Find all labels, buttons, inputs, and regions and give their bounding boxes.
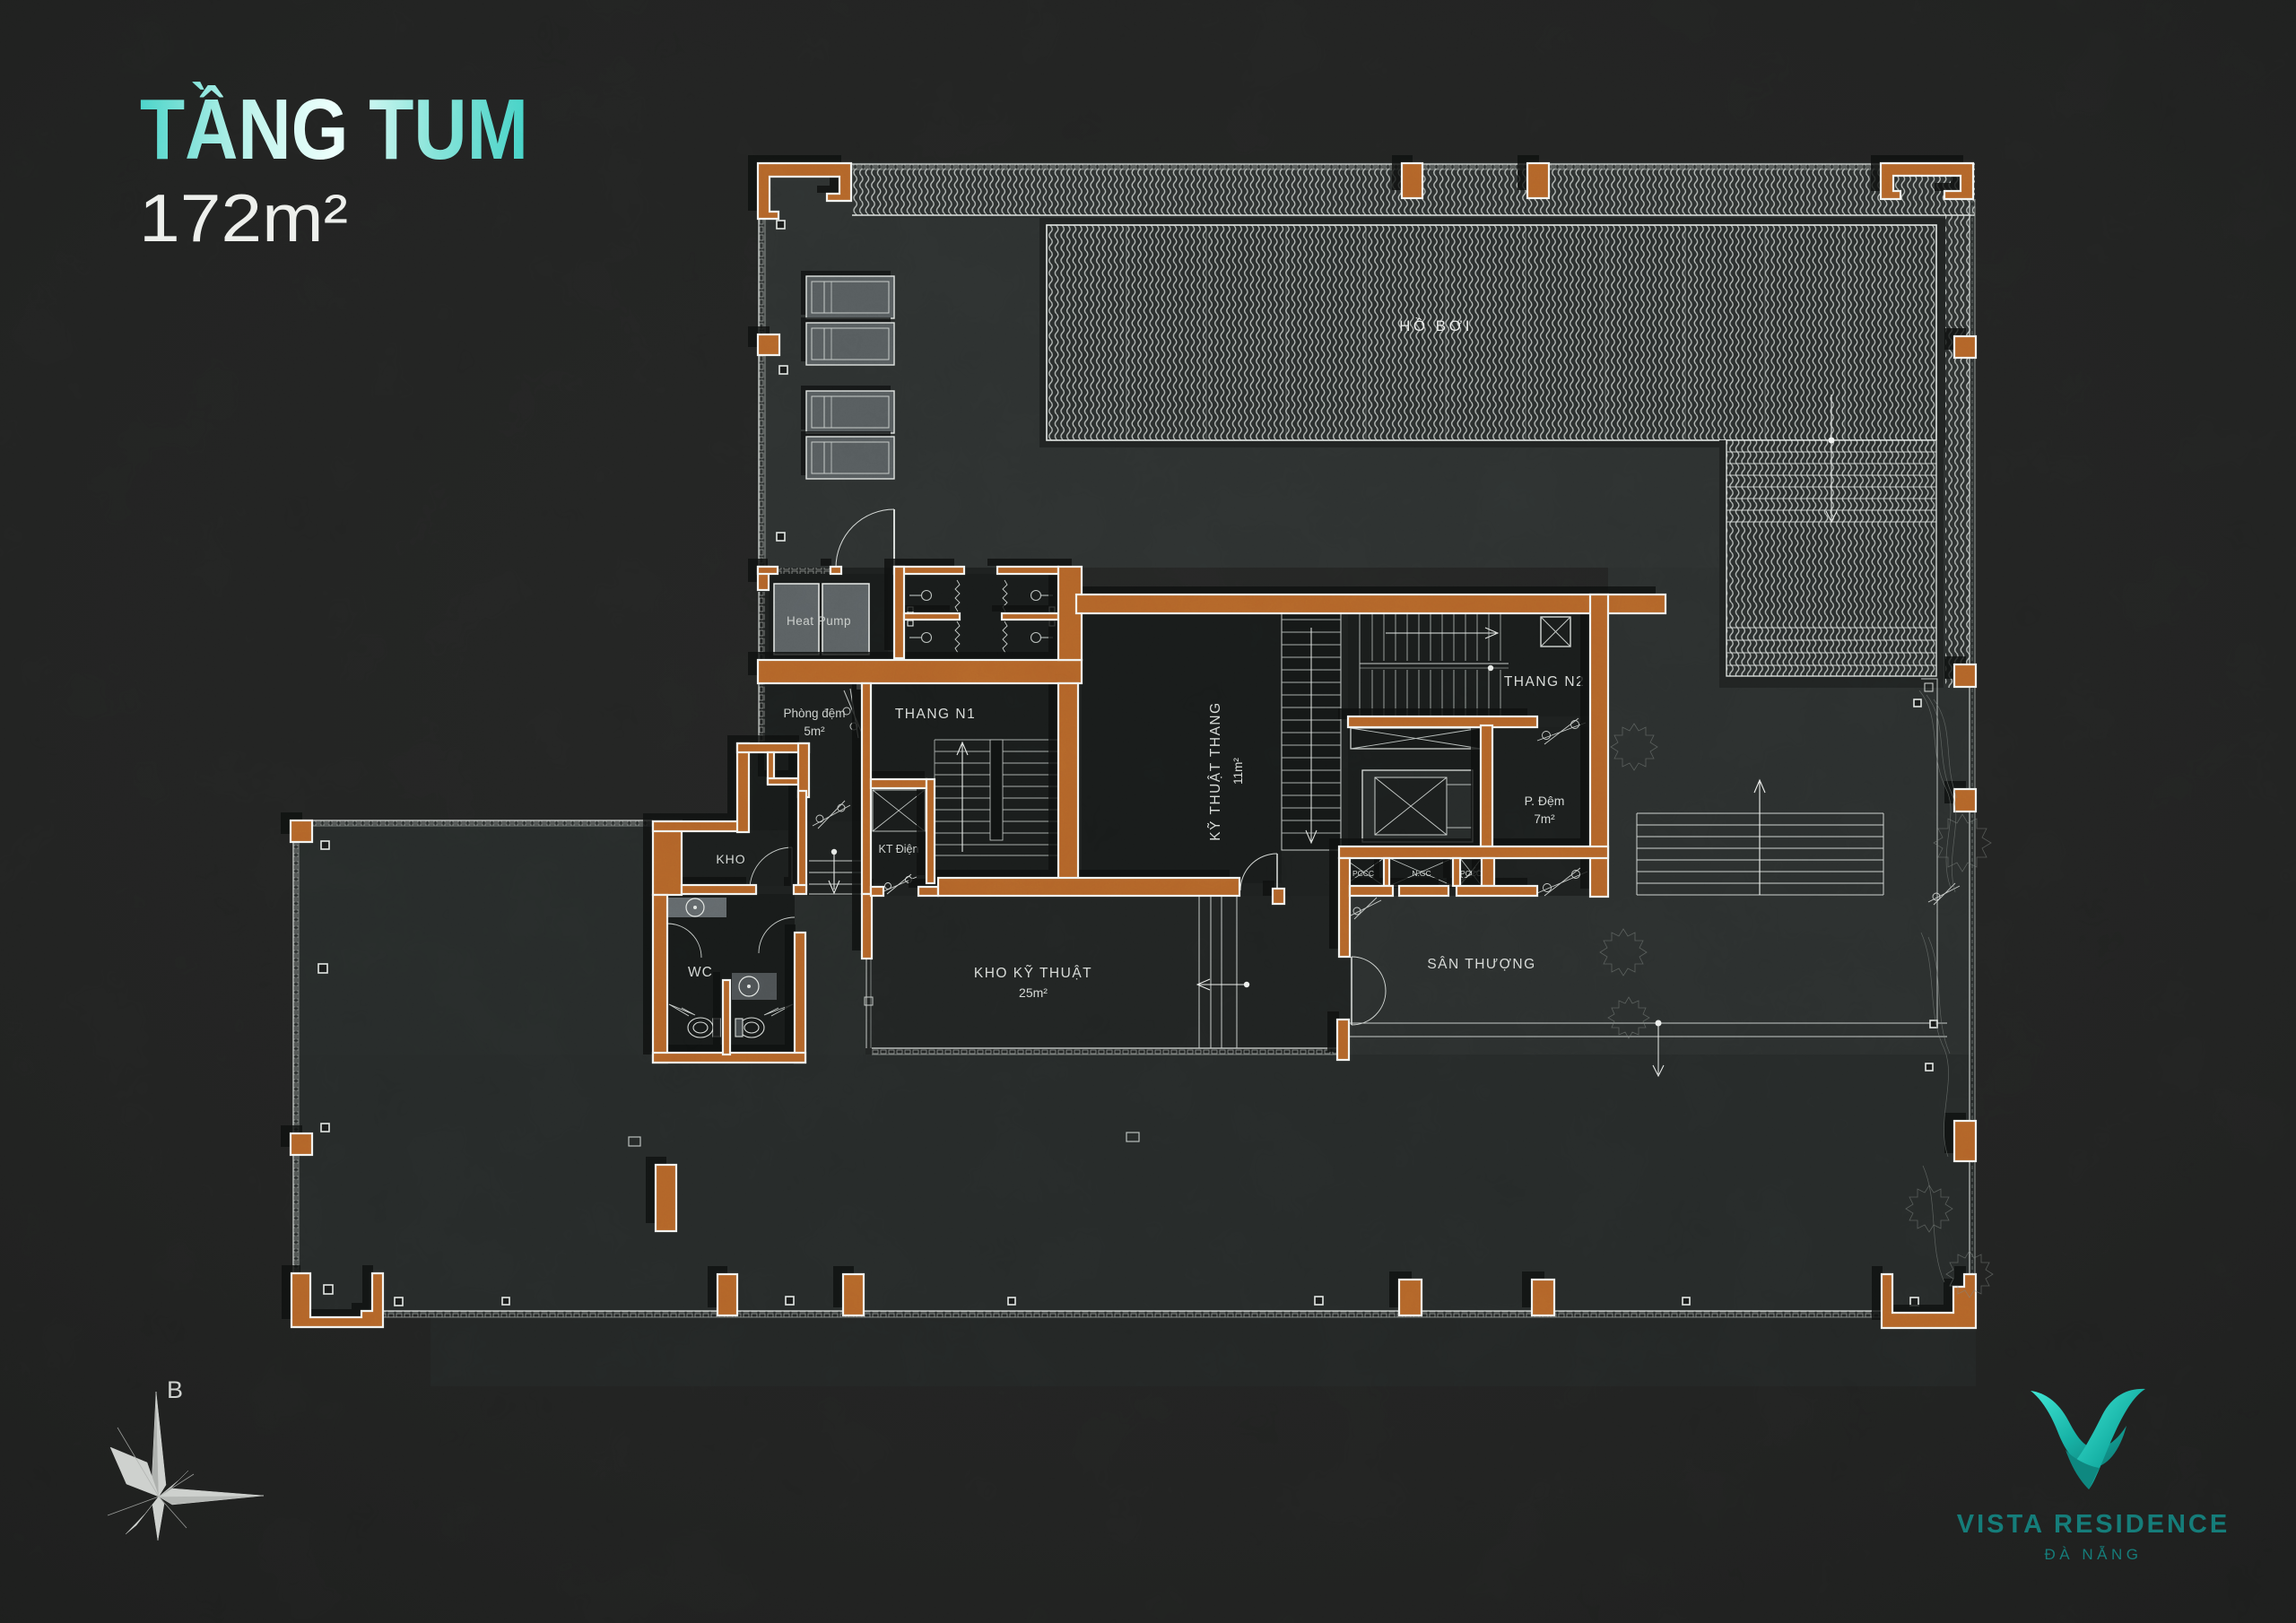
- svg-text:VISTA RESIDENCE: VISTA RESIDENCE: [1957, 1510, 2230, 1539]
- svg-text:B: B: [167, 1376, 183, 1403]
- svg-text:ĐÀ NẴNG: ĐÀ NẴNG: [2045, 1546, 2143, 1563]
